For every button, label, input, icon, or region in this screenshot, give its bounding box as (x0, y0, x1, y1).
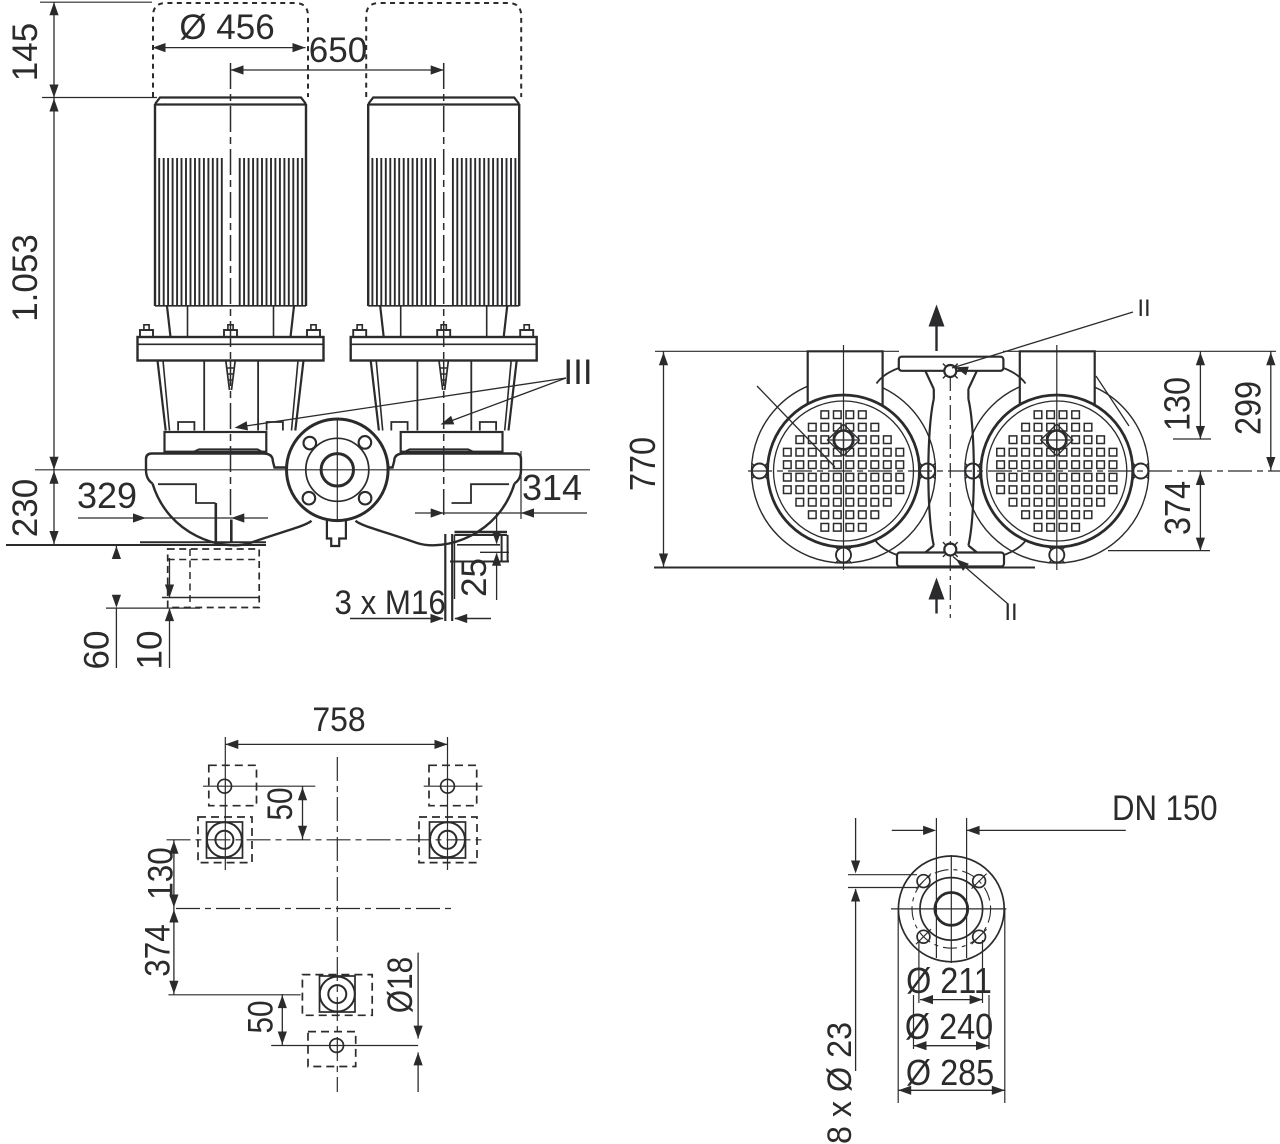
svg-text:145: 145 (6, 23, 45, 81)
svg-text:25: 25 (455, 558, 494, 597)
svg-text:Ø 285: Ø 285 (906, 1053, 994, 1093)
svg-text:Ø18: Ø18 (381, 957, 420, 1013)
svg-text:10: 10 (131, 631, 170, 670)
svg-text:130: 130 (1158, 377, 1198, 431)
svg-text:374: 374 (139, 924, 178, 977)
svg-text:314: 314 (522, 467, 582, 508)
svg-text:Ø 211: Ø 211 (906, 961, 992, 1001)
svg-text:299: 299 (1229, 381, 1269, 435)
svg-text:DN 150: DN 150 (1112, 789, 1218, 828)
svg-text:II: II (1137, 295, 1150, 322)
svg-text:Ø 456: Ø 456 (179, 8, 274, 47)
svg-text:770: 770 (623, 437, 663, 491)
svg-text:230: 230 (6, 479, 45, 537)
svg-text:8 x Ø 23: 8 x Ø 23 (821, 1022, 859, 1144)
svg-text:650: 650 (309, 31, 367, 70)
svg-text:130: 130 (142, 847, 181, 900)
svg-text:50: 50 (241, 1000, 280, 1033)
svg-text:1.053: 1.053 (6, 234, 45, 322)
svg-text:758: 758 (312, 700, 365, 738)
svg-text:50: 50 (261, 787, 300, 820)
svg-text:374: 374 (1158, 481, 1198, 535)
svg-text:60: 60 (78, 631, 117, 670)
svg-text:3 x M16: 3 x M16 (335, 583, 446, 622)
svg-text:329: 329 (77, 475, 137, 516)
svg-text:Ø 240: Ø 240 (905, 1007, 993, 1047)
svg-text:III: III (563, 353, 592, 392)
